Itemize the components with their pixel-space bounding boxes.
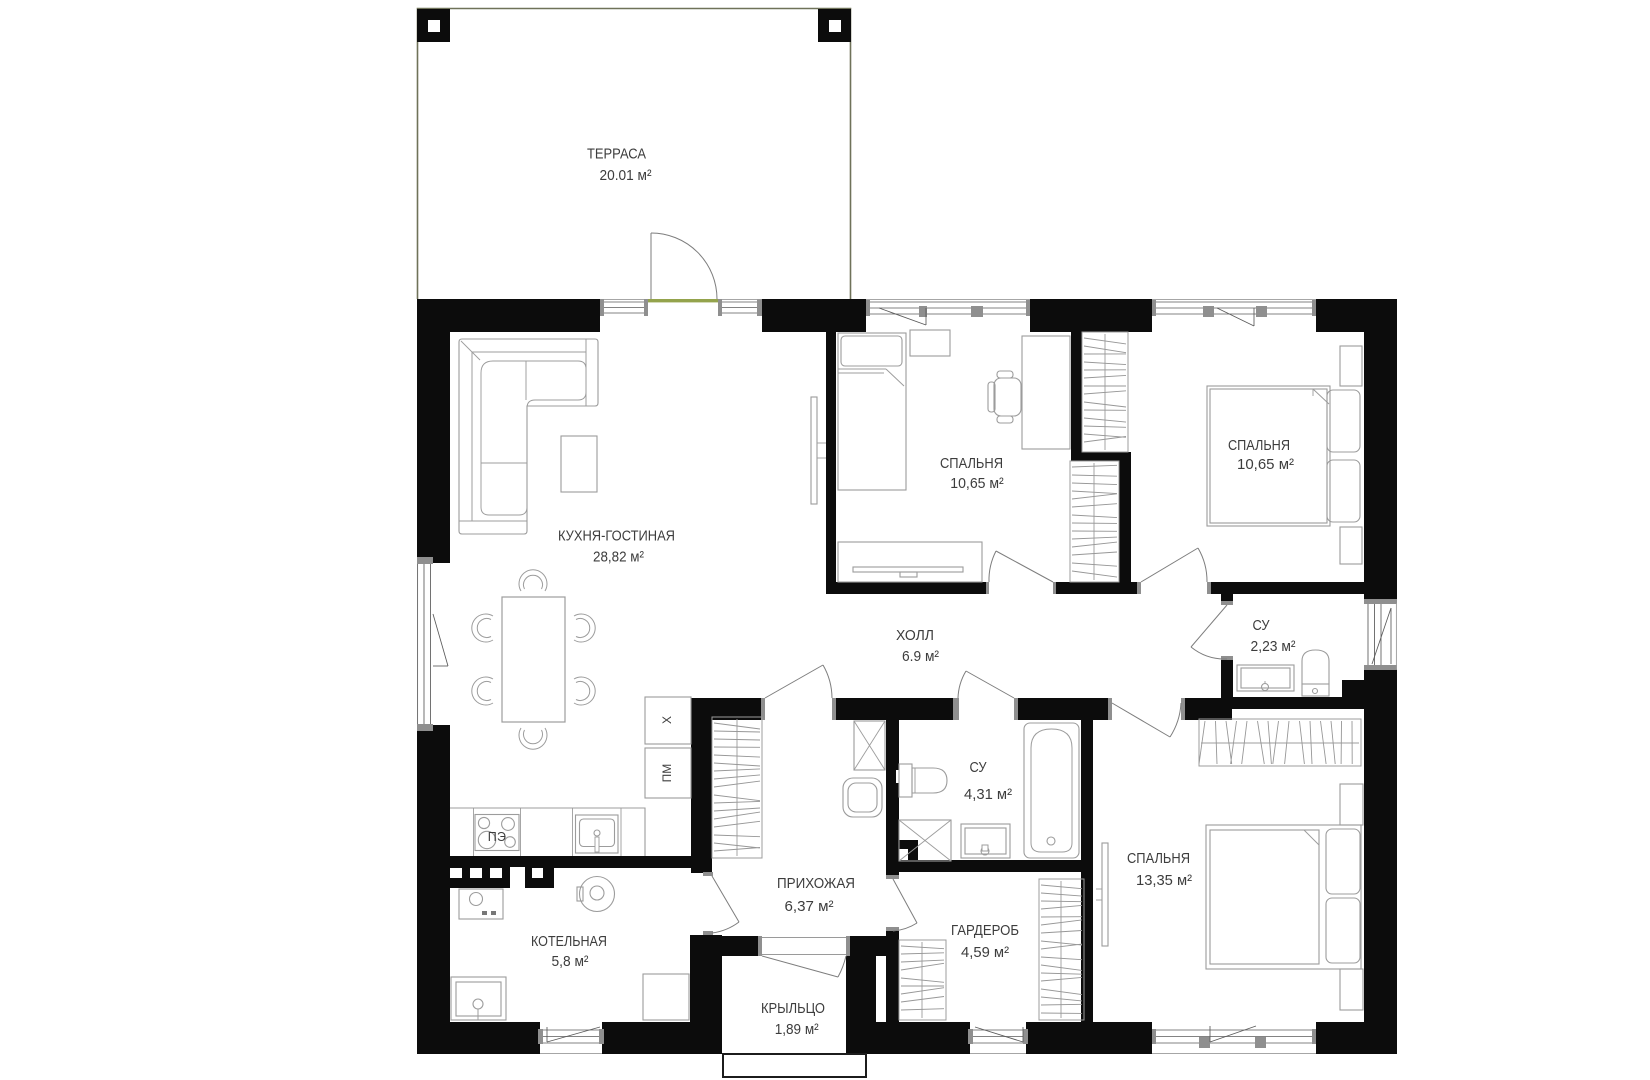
svg-text:ПЭ: ПЭ <box>488 830 507 844</box>
svg-text:СПАЛЬНЯ: СПАЛЬНЯ <box>1228 438 1290 454</box>
svg-text:ГАРДЕРОБ: ГАРДЕРОБ <box>951 923 1019 939</box>
svg-text:4,59 м²: 4,59 м² <box>961 944 1009 961</box>
svg-text:5,8 м²: 5,8 м² <box>552 953 589 970</box>
svg-text:СПАЛЬНЯ: СПАЛЬНЯ <box>940 456 1003 472</box>
svg-text:КУХНЯ-ГОСТИНАЯ: КУХНЯ-ГОСТИНАЯ <box>558 529 675 545</box>
svg-text:СПАЛЬНЯ: СПАЛЬНЯ <box>1127 851 1190 867</box>
svg-text:2,23 м²: 2,23 м² <box>1251 638 1296 655</box>
svg-text:6.9 м²: 6.9 м² <box>902 648 939 665</box>
svg-text:СУ: СУ <box>970 760 988 776</box>
svg-text:10,65 м²: 10,65 м² <box>1237 456 1294 473</box>
svg-text:Х: Х <box>660 716 674 724</box>
svg-text:ТЕРРАСА: ТЕРРАСА <box>587 147 646 163</box>
svg-text:КРЫЛЬЦО: КРЫЛЬЦО <box>761 1001 825 1017</box>
svg-text:13,35 м²: 13,35 м² <box>1136 872 1192 889</box>
svg-text:6,37 м²: 6,37 м² <box>785 898 834 915</box>
svg-text:10,65 м²: 10,65 м² <box>950 475 1004 492</box>
svg-text:КОТЕЛЬНАЯ: КОТЕЛЬНАЯ <box>531 934 607 950</box>
svg-text:ПМ: ПМ <box>660 764 674 783</box>
svg-text:20.01 м²: 20.01 м² <box>600 167 652 184</box>
svg-text:1,89 м²: 1,89 м² <box>775 1021 819 1038</box>
svg-text:СУ: СУ <box>1253 618 1271 634</box>
svg-text:4,31 м²: 4,31 м² <box>964 786 1012 803</box>
svg-text:ПРИХОЖАЯ: ПРИХОЖАЯ <box>777 876 855 892</box>
svg-text:28,82 м²: 28,82 м² <box>593 549 644 566</box>
svg-text:ХОЛЛ: ХОЛЛ <box>896 628 934 644</box>
